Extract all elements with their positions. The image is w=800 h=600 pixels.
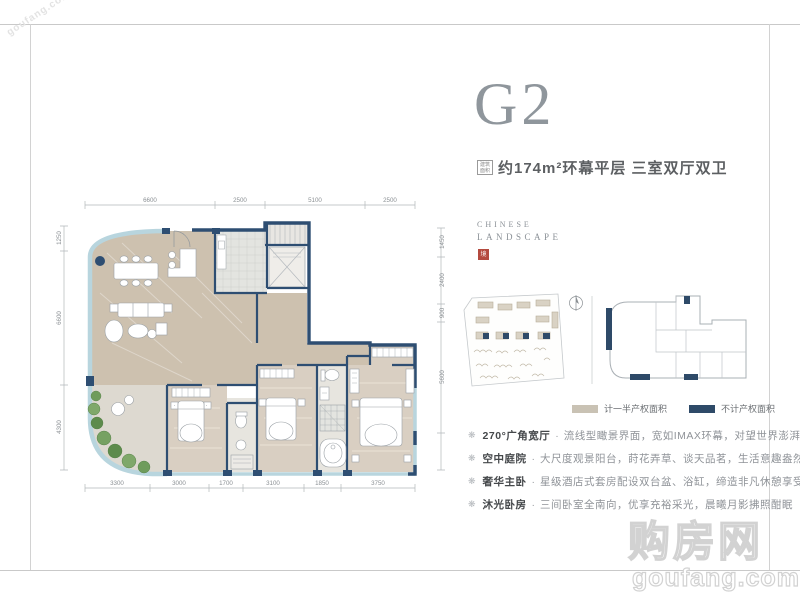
svg-text:900: 900 xyxy=(439,307,446,318)
brand-seal-char: 境 xyxy=(480,252,486,258)
frame-left-line xyxy=(30,24,31,570)
svg-text:3300: 3300 xyxy=(110,480,124,487)
svg-text:5600: 5600 xyxy=(439,370,446,384)
legend-label-half: 计一半产权面积 xyxy=(604,402,667,415)
kitchen-island xyxy=(168,249,196,277)
svg-text:1700: 1700 xyxy=(219,480,233,487)
feature-label: 空中庭院 xyxy=(483,451,527,466)
site-plan xyxy=(460,290,754,392)
svg-text:2500: 2500 xyxy=(383,197,397,204)
brand-line2: LANDSCAPE xyxy=(477,232,562,242)
svg-text:1850: 1850 xyxy=(315,480,329,487)
subtitle-text: 约174m²环幕平层 三室双厅双卫 xyxy=(498,157,728,178)
site-watermark: 购房网 goufang.com xyxy=(628,521,800,591)
key-plan xyxy=(606,296,746,380)
north-compass-icon xyxy=(570,295,583,311)
feature-text: 星级酒店式套房配设双台盆、浴缸，缔造非凡休憩享受 xyxy=(540,474,800,489)
area-seal-icon: 建筑面积 xyxy=(477,160,493,175)
legend-swatch-none xyxy=(689,405,715,413)
svg-text:5100: 5100 xyxy=(308,197,322,204)
svg-text:1450: 1450 xyxy=(439,235,446,249)
dining-table xyxy=(114,256,158,286)
frame-top-line xyxy=(0,24,800,25)
feature-sep: · xyxy=(532,476,536,488)
legend-swatch-half xyxy=(572,405,598,413)
feature-label: 270°广角宽厅 xyxy=(483,428,551,443)
feature-label: 奢华主卧 xyxy=(483,474,527,489)
svg-text:4300: 4300 xyxy=(56,420,63,434)
feature-text: 流线型瞰景界面，宽如IMAX环幕，对望世界澎湃 xyxy=(564,428,800,443)
svg-text:3000: 3000 xyxy=(172,480,186,487)
svg-text:1250: 1250 xyxy=(56,231,63,245)
svg-text:3100: 3100 xyxy=(266,480,280,487)
feature-sep: · xyxy=(532,499,536,511)
subtitle-row: 建筑面积 约174m²环幕平层 三室双厅双卫 xyxy=(477,157,728,178)
flower-bullet-icon: ❋ xyxy=(468,499,476,510)
stairs xyxy=(265,223,309,245)
brand-line1: CHINESE xyxy=(477,220,562,229)
feature-item: ❋ 270°广角宽厅 · 流线型瞰景界面，宽如IMAX环幕，对望世界澎湃 xyxy=(468,428,800,443)
feature-text: 大尺度观景阳台，莳花弄草、谈天品茗，生活意趣盎然 xyxy=(540,451,800,466)
legend-item-none: 不计产权面积 xyxy=(689,402,775,415)
page-title: G2 xyxy=(474,74,555,134)
brand-seal-icon: 境 xyxy=(478,249,489,260)
feature-list: ❋ 270°广角宽厅 · 流线型瞰景界面，宽如IMAX环幕，对望世界澎湃 ❋ 空… xyxy=(468,428,800,520)
feature-text: 三间卧室全南向，优享充裕采光，晨曦月影拂照酣眠 xyxy=(540,497,793,512)
flower-bullet-icon: ❋ xyxy=(468,453,476,464)
svg-text:3750: 3750 xyxy=(371,480,385,487)
watermark-name: 购房网 xyxy=(628,521,800,563)
svg-text:6600: 6600 xyxy=(143,197,157,204)
feature-item: ❋ 沐光卧房 · 三间卧室全南向，优享充裕采光，晨曦月影拂照酣眠 xyxy=(468,497,800,512)
flower-bullet-icon: ❋ xyxy=(468,476,476,487)
kitchen-counter xyxy=(217,235,226,269)
svg-text:6600: 6600 xyxy=(56,311,63,325)
corner-watermark: goufang.com xyxy=(5,0,73,38)
feature-sep: · xyxy=(532,453,536,465)
feature-item: ❋ 奢华主卧 · 星级酒店式套房配设双台盆、浴缸，缔造非凡休憩享受 xyxy=(468,474,800,489)
svg-text:2500: 2500 xyxy=(233,197,247,204)
flower-bullet-icon: ❋ xyxy=(468,430,476,441)
watermark-url: goufang.com xyxy=(632,566,800,591)
legend-label-none: 不计产权面积 xyxy=(721,402,775,415)
legend: 计一半产权面积 不计产权面积 xyxy=(572,402,775,415)
brand-block: CHINESE LANDSCAPE xyxy=(477,220,562,242)
floor-plan: 6600 2500 5100 2500 1250 6600 4300 1450 … xyxy=(52,193,456,505)
feature-item: ❋ 空中庭院 · 大尺度观景阳台，莳花弄草、谈天品茗，生活意趣盎然 xyxy=(468,451,800,466)
feature-label: 沐光卧房 xyxy=(483,497,527,512)
svg-text:2400: 2400 xyxy=(439,273,446,287)
legend-item-half: 计一半产权面积 xyxy=(572,402,667,415)
feature-sep: · xyxy=(555,430,559,442)
